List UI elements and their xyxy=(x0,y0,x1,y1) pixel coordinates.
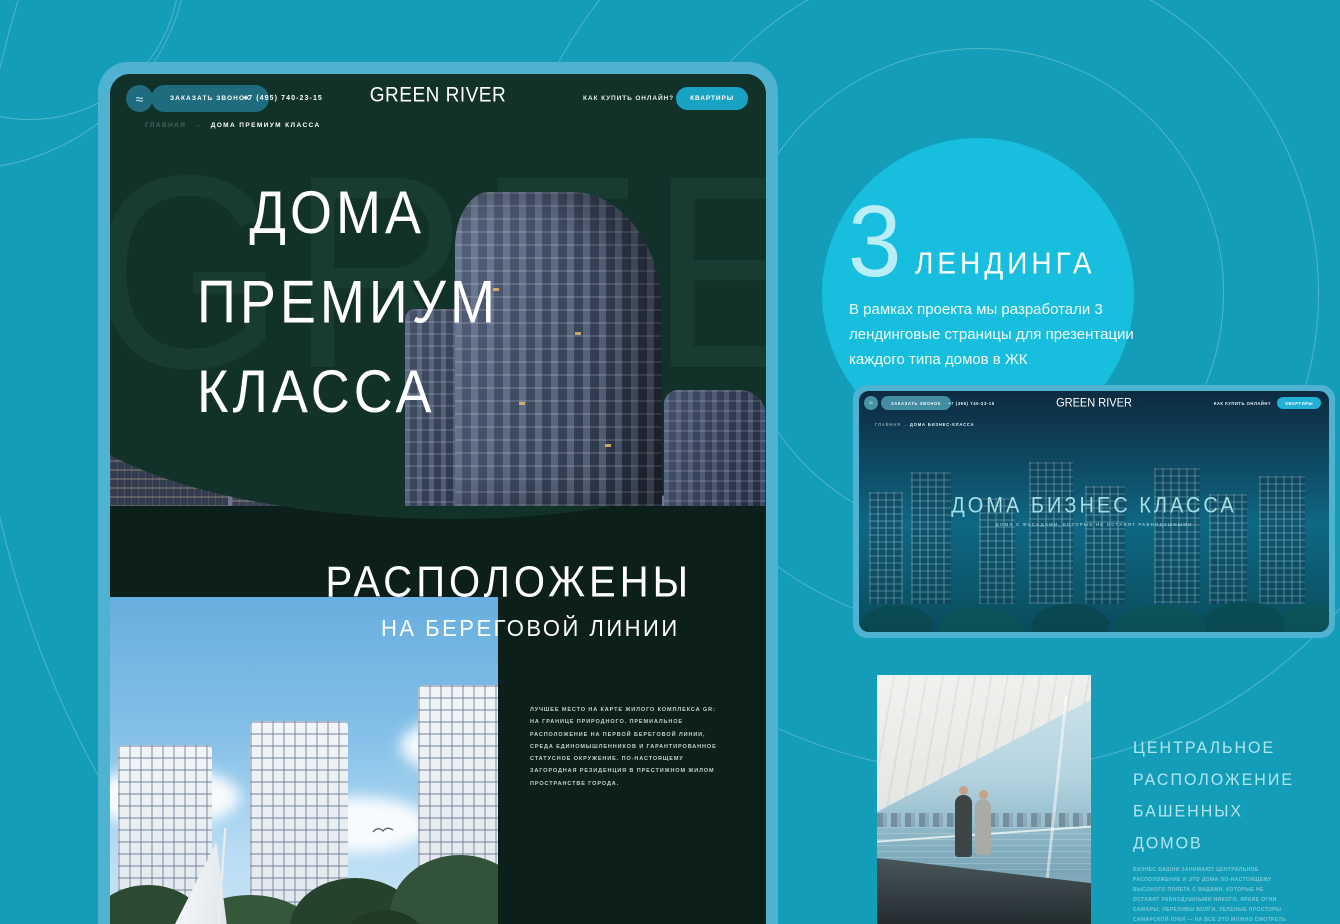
stat-label: ЛЕНДИНГА xyxy=(915,246,1096,281)
breadcrumb-home-link[interactable]: ГЛАВНАЯ xyxy=(145,122,186,129)
site-header: ≈ ЗАКАЗАТЬ ЗВОНОК +7 (495) 740-23-15 GRE… xyxy=(859,391,1329,421)
presentation-canvas: GREEN RIVER ДОМА ПРЕМИУМ КЛАССА xyxy=(0,0,1340,924)
central-title-line: РАСПОЛОЖЕНИЕ xyxy=(1133,765,1293,797)
main-tower xyxy=(455,192,662,506)
flats-button[interactable]: КВАРТИРЫ xyxy=(1277,397,1321,409)
flats-button[interactable]: КВАРТИРЫ xyxy=(676,87,748,110)
location-title: РАСПОЛОЖЕНЫ xyxy=(326,558,693,608)
tree-blob xyxy=(390,855,498,924)
hero-title-line: КЛАССА xyxy=(197,347,425,437)
person-silhouette xyxy=(975,799,991,855)
side-tower xyxy=(664,390,766,506)
stat-description: В рамках проекта мы разработали 3 лендин… xyxy=(849,297,1179,372)
breadcrumb-home-link[interactable]: ГЛАВНАЯ xyxy=(875,422,901,427)
breadcrumb-arrow-icon: → xyxy=(903,422,908,427)
central-location-block: ЦЕНТРАЛЬНОЕ РАСПОЛОЖЕНИЕ БАШЕННЫХ ДОМОВ … xyxy=(1133,733,1293,924)
location-body-text: ЛУЧШЕЕ МЕСТО НА КАРТЕ ЖИЛОГО КОМПЛЕКСА G… xyxy=(530,704,726,790)
business-landing-mockup: ≈ ЗАКАЗАТЬ ЗВОНОК +7 (495) 740-23-15 GRE… xyxy=(853,385,1335,638)
premium-landing-page: GREEN RIVER ДОМА ПРЕМИУМ КЛАССА xyxy=(110,74,766,924)
hero-title: ДОМА ПРЕМИУМ КЛАССА xyxy=(197,168,425,437)
site-header: ≈ ЗАКАЗАТЬ ЗВОНОК +7 (495) 740-23-15 GRE… xyxy=(110,74,766,124)
premium-landing-mockup: GREEN RIVER ДОМА ПРЕМИУМ КЛАССА xyxy=(98,62,778,924)
central-title-line: ЦЕНТРАЛЬНОЕ xyxy=(1133,733,1293,765)
breadcrumb-arrow-icon: → xyxy=(195,122,203,129)
breadcrumb: ГЛАВНАЯ → ДОМА ПРЕМИУМ КЛАССА xyxy=(145,122,321,129)
breadcrumb: ГЛАВНАЯ → ДОМА БИЗНЕС-КЛАССА xyxy=(875,422,974,427)
person-silhouette xyxy=(955,795,972,857)
buy-online-link[interactable]: КАК КУПИТЬ ОНЛАЙН? xyxy=(1214,401,1271,406)
hero-subtitle: ДОМА С ФАСАДАМИ, КОТОРЫЕ НЕ ОСТАВЯТ РАВН… xyxy=(859,522,1329,527)
business-landing-page: ≈ ЗАКАЗАТЬ ЗВОНОК +7 (495) 740-23-15 GRE… xyxy=(859,391,1329,632)
hero-title: ДОМА БИЗНЕС КЛАССА xyxy=(859,494,1329,519)
waterfront-photo xyxy=(110,597,498,924)
central-block-title: ЦЕНТРАЛЬНОЕ РАСПОЛОЖЕНИЕ БАШЕННЫХ ДОМОВ xyxy=(1133,733,1293,860)
hero-section: GREEN RIVER ДОМА ПРЕМИУМ КЛАССА xyxy=(110,74,766,506)
hero-title-line: ДОМА xyxy=(197,168,425,258)
seagull-icon xyxy=(372,825,394,834)
breadcrumb-current: ДОМА ПРЕМИУМ КЛАССА xyxy=(211,122,321,129)
balcony-photo xyxy=(877,675,1091,924)
central-title-line: БАШЕННЫХ ДОМОВ xyxy=(1133,797,1293,861)
stat-number: 3 xyxy=(848,192,901,293)
hero-title-line: ПРЕМИУМ xyxy=(197,258,425,348)
buy-online-link[interactable]: КАК КУПИТЬ ОНЛАЙН? xyxy=(583,95,674,102)
location-subtitle: НА БЕРЕГОВОЙ ЛИНИИ xyxy=(381,615,680,642)
breadcrumb-current: ДОМА БИЗНЕС-КЛАССА xyxy=(910,422,975,427)
central-block-body: БИЗНЕС-БАШНИ ЗАНИМАЮТ ЦЕНТРАЛЬНОЕ РАСПОЛ… xyxy=(1133,865,1289,924)
